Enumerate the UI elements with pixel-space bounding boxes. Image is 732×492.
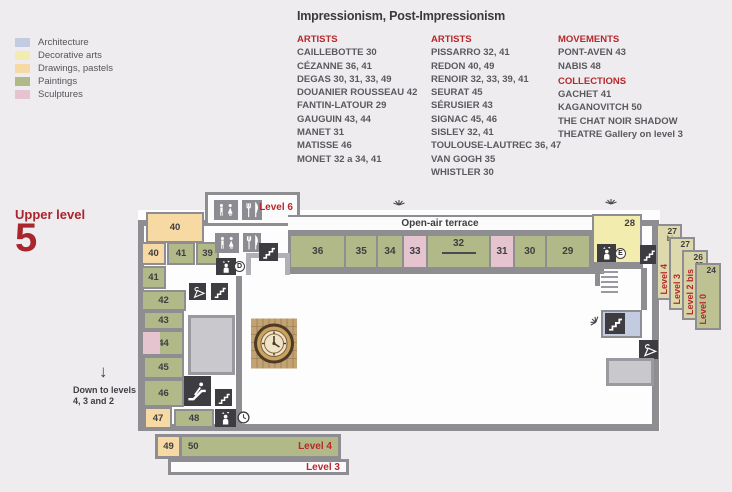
legend-item: Sculptures	[15, 88, 113, 101]
artist-entry: SEURAT 45	[431, 86, 561, 99]
column-header: ARTISTS	[431, 34, 472, 45]
room-40: 40	[141, 242, 166, 265]
movement-entry: NABIS 48	[558, 60, 683, 73]
collection-entry: GACHET 41	[558, 88, 683, 101]
room-44-sculpture-zone	[143, 332, 160, 354]
artist-entry: REDON 40, 49	[431, 60, 561, 73]
room-48: 48	[174, 409, 214, 428]
legend-item: Decorative arts	[15, 49, 113, 62]
room-36: 36	[291, 236, 344, 267]
room-50-number: 50	[188, 441, 199, 452]
artists-column-1: ARTISTS CAILLEBOTTE 30 CÉZANNE 36, 41 DE…	[297, 31, 417, 166]
legend-item: Paintings	[15, 75, 113, 88]
legend-label: Architecture	[38, 37, 89, 48]
cascade-label: Level 2 bis	[685, 269, 695, 315]
room-27: 27	[681, 240, 690, 249]
gallery-row: 36 35 34 33 32 31 30 29	[288, 233, 592, 270]
room-45: 45	[143, 356, 184, 379]
artist-entry: WHISTLER 30	[431, 166, 561, 179]
down-arrow-icon: ↓	[99, 362, 108, 382]
down-note-line2: 4, 3 and 2	[73, 396, 114, 407]
artist-entry: GAUGUIN 43, 44	[297, 113, 417, 126]
room-50: 50 Level 4	[182, 437, 338, 456]
level3-label: Level 3	[306, 462, 340, 473]
column-header: ARTISTS	[297, 34, 338, 45]
collection-entry: KAGANOVITCH 50	[558, 101, 683, 114]
level-number: 5	[15, 219, 37, 257]
cloakroom-icon	[639, 340, 658, 359]
artist-entry: FANTIN-LATOUR 29	[297, 99, 417, 112]
museum-floor-plan-page: { "palette": { "accent_red": "#b5282c", …	[0, 0, 732, 492]
movement-entry: PONT-AVEN 43	[558, 46, 683, 59]
artist-entry: MATISSE 46	[297, 139, 417, 152]
room-31: 31	[491, 236, 513, 267]
staircase-hatch	[601, 271, 618, 295]
wall-right-wing-b	[641, 268, 647, 310]
artist-entry: SISLEY 32, 41	[431, 126, 561, 139]
level6-label: Level 6	[259, 202, 293, 213]
room-46: 46	[143, 379, 184, 407]
viewpoint-icon	[391, 193, 407, 207]
room-49: 49	[158, 437, 182, 456]
level4-bar: 49 50 Level 4	[155, 434, 341, 459]
elevator-icon	[216, 258, 236, 275]
legend-swatch-architecture	[15, 38, 30, 47]
artist-entry: SIGNAC 45, 46	[431, 113, 561, 126]
legend-swatch-decorative-arts	[15, 51, 30, 60]
artist-entry: MONET 32 a 34, 41	[297, 153, 417, 166]
legend-item: Drawings, pastels	[15, 62, 113, 75]
room-41: 41	[167, 242, 195, 265]
room-35: 35	[346, 236, 376, 267]
legend-label: Paintings	[38, 76, 77, 87]
room-40-large: 40	[146, 212, 204, 243]
wall-left-wing-inner	[236, 276, 242, 426]
elevator-icon	[215, 409, 236, 427]
artist-entry: SÉRUSIER 43	[431, 99, 561, 112]
stairs-icon	[640, 245, 657, 264]
elevator-letter-d: D	[234, 261, 245, 272]
artist-entry: RENOIR 32, 33, 39, 41	[431, 73, 561, 86]
escalator-icon	[184, 376, 211, 406]
artist-entry: TOULOUSE-LAUTREC 36, 47	[431, 139, 561, 152]
column-header: COLLECTIONS	[558, 76, 626, 87]
artist-entry: PISSARRO 32, 41	[431, 46, 561, 59]
room-42: 42	[141, 290, 186, 311]
level6-callout-box: Level 6	[205, 192, 300, 226]
room-gray-service	[606, 358, 654, 386]
artist-entry: DEGAS 30, 31, 33, 49	[297, 73, 417, 86]
wall-right-wing-c	[595, 264, 600, 286]
cascade-card-level0: 24 Level 0	[695, 263, 721, 330]
room-43: 43	[143, 311, 184, 330]
level3-bar: Level 3	[168, 459, 349, 475]
elevator-letter-e: E	[615, 248, 626, 259]
artist-entry: CÉZANNE 36, 41	[297, 60, 417, 73]
stairs-icon	[605, 313, 625, 334]
legend-swatch-paintings	[15, 77, 30, 86]
column-header: MOVEMENTS	[558, 34, 619, 45]
clock-icon	[237, 411, 250, 424]
legend-label: Sculptures	[38, 89, 83, 100]
stairs-icon	[259, 243, 278, 261]
movements-collections-column: MOVEMENTS PONT-AVEN 43 NABIS 48 COLLECTI…	[558, 31, 683, 141]
collection-entry: THEATRE Gallery on level 3	[558, 128, 683, 141]
room-41b: 41	[141, 266, 166, 289]
legend: Architecture Decorative arts Drawings, p…	[15, 36, 113, 101]
cascade-label: Level 4	[659, 264, 669, 295]
legend-item: Architecture	[15, 36, 113, 49]
room-29: 29	[547, 236, 589, 267]
artist-entry: DOUANIER ROUSSEAU 42	[297, 86, 417, 99]
cascade-label: Level 3	[672, 274, 682, 305]
grand-clock	[251, 318, 297, 369]
room-47: 47	[144, 407, 172, 429]
room-34: 34	[378, 236, 402, 267]
artist-entry: MANET 31	[297, 126, 417, 139]
artist-entry: VAN GOGH 35	[431, 153, 561, 166]
room-33: 33	[404, 236, 426, 267]
cascade-label: Level 0	[698, 294, 708, 325]
down-note-line1: Down to levels	[73, 385, 136, 396]
open-air-terrace: Open-air terrace	[288, 215, 592, 233]
viewpoint-icon	[603, 192, 619, 206]
legend-label: Decorative arts	[38, 50, 102, 61]
restroom-icon	[214, 200, 238, 220]
room-30: 30	[515, 236, 545, 267]
legend-label: Drawings, pastels	[38, 63, 113, 74]
level4-label: Level 4	[298, 441, 332, 452]
artists-column-2: ARTISTS PISSARRO 32, 41 REDON 40, 49 REN…	[431, 31, 561, 179]
legend-swatch-sculptures	[15, 90, 30, 99]
stairs-icon	[215, 389, 232, 406]
room-24: 24	[707, 266, 716, 275]
restroom-icon	[215, 233, 239, 253]
legend-swatch-drawings	[15, 64, 30, 73]
cloakroom-icon	[189, 283, 206, 300]
interior-court-space	[188, 315, 235, 375]
room-32: 32	[428, 236, 489, 267]
artist-entry: CAILLEBOTTE 30	[297, 46, 417, 59]
stairs-icon	[211, 283, 228, 300]
collection-entry: THE CHAT NOIR SHADOW	[558, 115, 683, 128]
page-title: Impressionism, Post-Impressionism	[297, 9, 505, 23]
elevator-icon	[597, 244, 616, 262]
